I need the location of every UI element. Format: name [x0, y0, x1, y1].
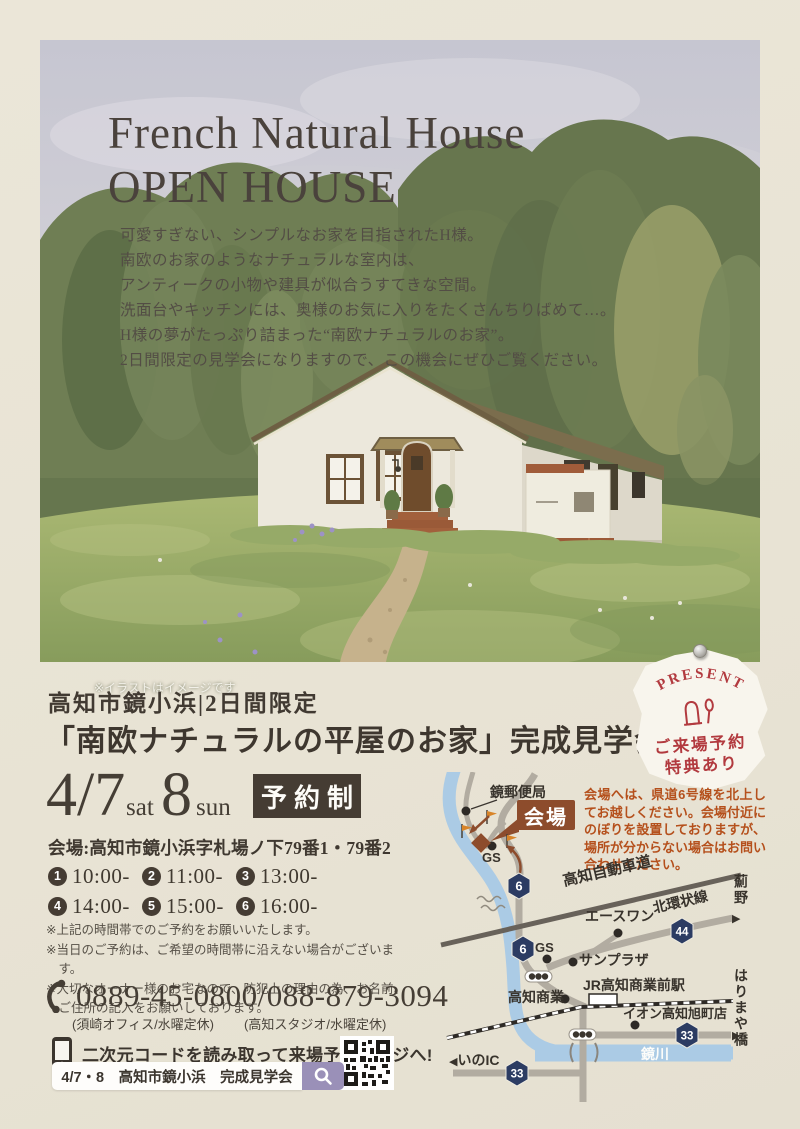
kagamigawa-label: 鏡川	[641, 1044, 669, 1064]
venue-tag: 会場	[517, 800, 575, 830]
qr-code[interactable]	[340, 1036, 394, 1090]
svg-text:44: 44	[676, 927, 689, 939]
time-slot: 414:00-	[48, 894, 142, 919]
slot-time: 15:00-	[166, 894, 224, 919]
svg-text:33: 33	[511, 1069, 524, 1081]
inoic-label: ◀いのIC	[449, 1050, 499, 1070]
slot-number-badge: 4	[48, 897, 67, 916]
azono-label: 薊野	[731, 874, 751, 906]
intro-line: アンティークの小物や建具が似合うすてきな空間。	[120, 273, 620, 298]
event-date-day2: 8	[161, 764, 192, 826]
event-date-day2-label: sun	[196, 794, 231, 822]
phone-number[interactable]: 0889-45-0800/088-879-3094	[76, 979, 448, 1013]
event-date-day1: 4/7	[46, 764, 125, 826]
phone-separator: /	[258, 978, 267, 1013]
slot-time: 14:00-	[72, 894, 130, 919]
harimaya-label: はりまや橋	[731, 968, 751, 1048]
jrstation-label: JR高知商業前駅	[583, 975, 685, 995]
intro-copy: 可愛すぎない、シンプルなお家を目指されたH様。 南欧のお家のようなナチュラルな室…	[120, 223, 620, 373]
gs2-dot	[543, 955, 552, 964]
time-slot: 110:00-	[48, 864, 142, 889]
intro-line: 可愛すぎない、シンプルなお家を目指されたH様。	[120, 223, 620, 248]
sunplaza-dot	[569, 958, 578, 967]
time-slots-row-2: 414:00- 515:00- 616:00-	[48, 894, 398, 919]
search-button[interactable]	[302, 1062, 344, 1090]
inoic-text: いのIC	[457, 1052, 499, 1068]
sunplaza-label: サンプラザ	[579, 950, 649, 970]
kochishogyo-label: 高知商業	[508, 987, 564, 1007]
office-label-susaki: (須崎オフィス/水曜定休)	[72, 1014, 214, 1033]
traffic-light-icon	[569, 1029, 596, 1040]
flyer: { "hero": { "title_line1": "French Natur…	[0, 0, 800, 1129]
search-input[interactable]: 4/7・8 高知市鏡小浜 完成見学会	[52, 1062, 302, 1090]
intro-line: 2日間限定の見学会になりますので、この機会にぜひご覧ください。	[120, 348, 620, 373]
venue-address: 会場:高知市鏡小浜字札場ノ下79番1・79番2	[48, 835, 391, 860]
slot-number-badge: 3	[236, 867, 255, 886]
route44-shield: 44	[671, 918, 693, 944]
reservation-badge: 予約制	[253, 774, 361, 818]
gs-label: GS	[535, 940, 554, 955]
time-slot: 515:00-	[142, 894, 236, 919]
gs-label: GS	[482, 850, 501, 865]
event-date-day1-label: sat	[126, 794, 154, 822]
svg-text:PRESENT: PRESENT	[654, 666, 747, 694]
postoffice-dot	[462, 807, 471, 816]
time-slots-row-1: 110:00- 211:00- 313:00-	[48, 864, 398, 889]
svg-text:33: 33	[681, 1031, 694, 1043]
time-slot: 211:00-	[142, 864, 236, 889]
slot-time: 16:00-	[260, 894, 318, 919]
route6-shield: 6	[508, 873, 530, 899]
title-line-2: OPEN HOUSE	[108, 160, 668, 214]
hero-illustration: French Natural House OPEN HOUSE 可愛すぎない、シ…	[40, 40, 760, 662]
present-arch-text: PRESENT	[640, 656, 762, 700]
access-map: 6 6 44 33 33 会場へは、県道6号線を北上してお越しください。会場付近…	[435, 772, 785, 1112]
slot-time: 13:00-	[260, 864, 318, 889]
headline-sub: 高知市鏡小浜|2日間限定	[48, 684, 319, 718]
intro-line: 洗面台やキッチンには、奥様のお気に入りをたくさんちりばめて…。	[120, 298, 620, 323]
aceone-label: エースワン	[585, 906, 654, 926]
slot-number-badge: 5	[142, 897, 161, 916]
phone-receiver-icon	[44, 979, 70, 1013]
intro-line: H様の夢がたっぷり詰まった“南欧ナチュラルのお家”。	[120, 323, 620, 348]
search-icon	[313, 1066, 333, 1086]
station-rect	[589, 994, 617, 1005]
svg-text:6: 6	[515, 879, 522, 894]
slot-number-badge: 1	[48, 867, 67, 886]
ion-label: イオン高知旭町店	[623, 1003, 727, 1022]
slot-time: 11:00-	[166, 864, 223, 889]
svg-text:6: 6	[519, 942, 526, 957]
page-title: French Natural House OPEN HOUSE	[108, 106, 668, 214]
time-slot: 616:00-	[236, 894, 330, 919]
intro-line: 南欧のお家のようなナチュラルな室内は、	[120, 248, 620, 273]
traffic-light-icon	[525, 971, 552, 982]
phone-section: 0889-45-0800/088-879-3094	[44, 979, 448, 1013]
time-slot: 313:00-	[236, 864, 330, 889]
slot-time: 10:00-	[72, 864, 130, 889]
title-line-1: French Natural House	[108, 106, 668, 160]
gift-icon	[676, 696, 726, 730]
route33-shield: 33	[676, 1022, 698, 1048]
note-item: ※上記の時間帯でのご予約をお願いいたします。	[46, 921, 414, 941]
aceone-dot	[614, 929, 623, 938]
headline-main: 「南欧ナチュラルの平屋のお家」完成見学会	[45, 716, 665, 760]
note-item: ※当日のご予約は、ご希望の時間帯に沿えない場合がございます。	[46, 941, 414, 980]
phone-number-2[interactable]: 088-879-3094	[267, 978, 449, 1013]
postoffice-label: 鏡郵便局	[490, 782, 546, 802]
slot-number-badge: 2	[142, 867, 161, 886]
slot-number-badge: 6	[236, 897, 255, 916]
right-arrow-icon: ▶	[732, 912, 740, 925]
phone-number-1[interactable]: 0889-45-0800	[76, 978, 258, 1013]
office-label-kochi: (高知スタジオ/水曜定休)	[244, 1014, 386, 1033]
route33-shield: 33	[506, 1060, 528, 1086]
